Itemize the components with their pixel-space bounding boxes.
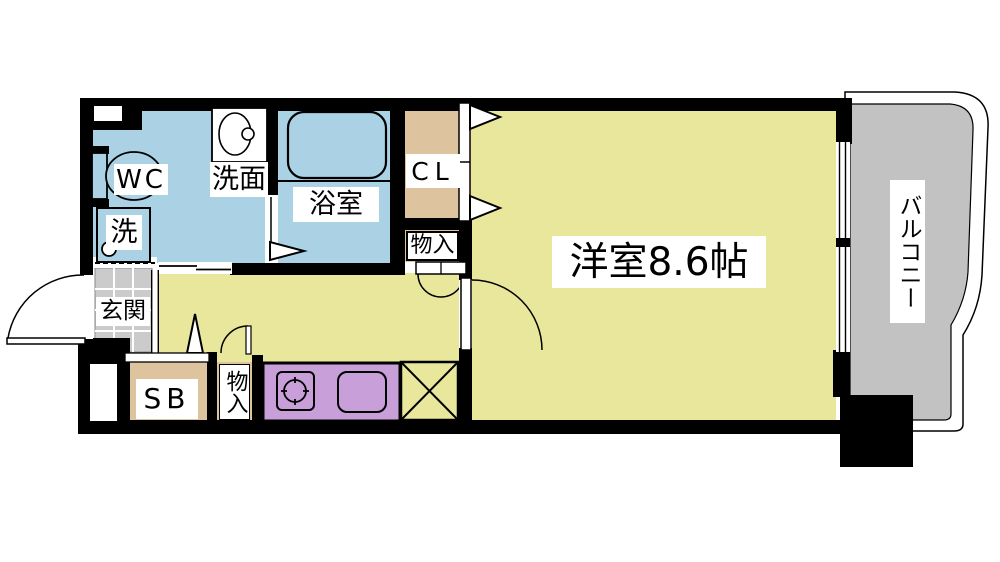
shoe-box-counter [125, 353, 209, 362]
entry-door [7, 275, 93, 344]
bathtub [278, 112, 390, 181]
room-label-entrance: 玄関 [96, 297, 150, 326]
kitchen-sink [338, 372, 386, 412]
room-label-balcony: バルコニー [890, 180, 925, 323]
kitchen-counter [263, 363, 400, 421]
room-label-washer: 洗 [106, 215, 142, 250]
room-label-western-room: 洋室8.6帖 [552, 236, 766, 288]
room-label-shoe-box: SB [136, 379, 198, 419]
room-label-wc: WC [114, 164, 168, 195]
floor-plan-drawing [0, 0, 1000, 562]
room-label-bathroom: 浴室 [293, 187, 379, 222]
balcony-window [836, 142, 850, 352]
sliding-door [158, 262, 232, 274]
room-label-storage-lower: 物入 [219, 364, 250, 420]
floor-plan: WC 洗 洗面 浴室 CL 物入 洋室8.6帖 玄関 SB 物入 バルコニー [0, 0, 1000, 562]
room-label-washroom: 洗面 [210, 162, 268, 197]
room-label-closet: CL [406, 154, 460, 188]
room-label-storage-upper: 物入 [406, 231, 459, 261]
refrigerator-space [401, 362, 458, 420]
wash-basin [212, 108, 267, 162]
structural-column [840, 395, 913, 467]
